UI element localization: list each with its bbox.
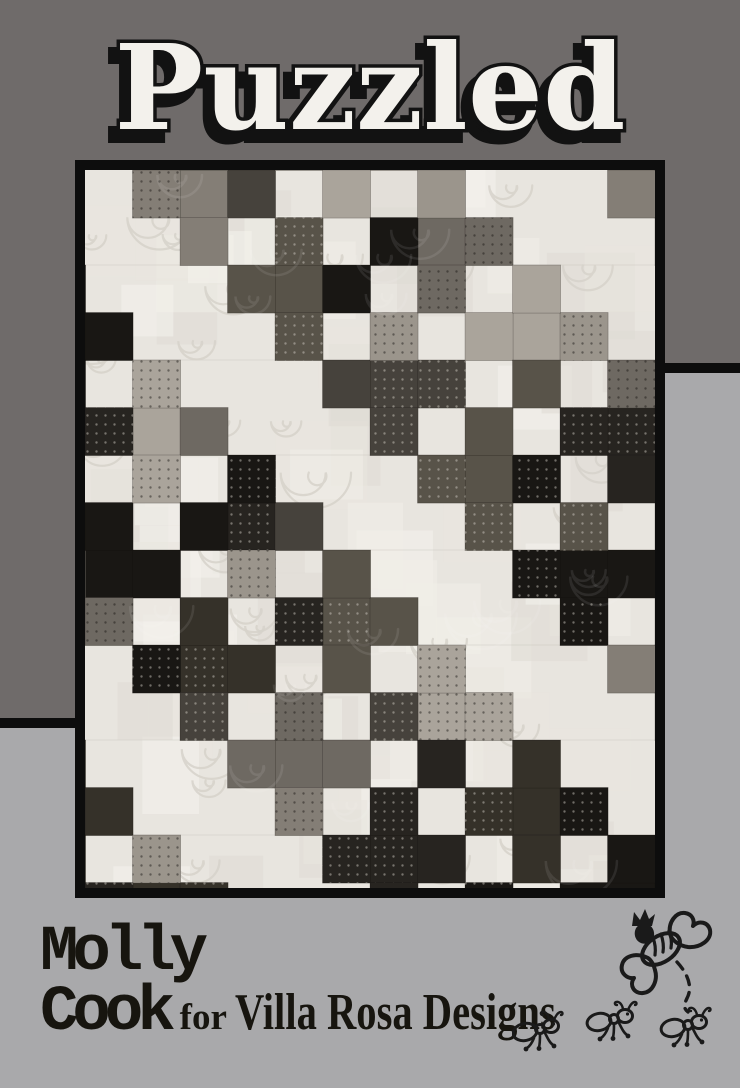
page-title-text: Puzzled	[0, 26, 740, 150]
ant-icon	[585, 1002, 636, 1042]
ant-icon	[512, 1012, 563, 1052]
ants-row	[512, 998, 730, 1056]
divider-line-right	[655, 363, 740, 373]
credit-connector: for	[180, 996, 227, 1039]
quilt-photo-frame	[75, 160, 665, 898]
designer-first-name: Molly	[40, 924, 646, 983]
divider-line-left	[0, 718, 80, 728]
quilt-photo	[85, 170, 655, 888]
studio-name: Villa Rosa Designs	[235, 983, 556, 1042]
pattern-cover-card: Puzzled Puzzled Molly Cook for Villa Ros…	[0, 0, 740, 1088]
ant-icon	[659, 1008, 710, 1048]
designer-last-name: Cook	[40, 984, 170, 1043]
page-title: Puzzled Puzzled	[0, 26, 740, 176]
